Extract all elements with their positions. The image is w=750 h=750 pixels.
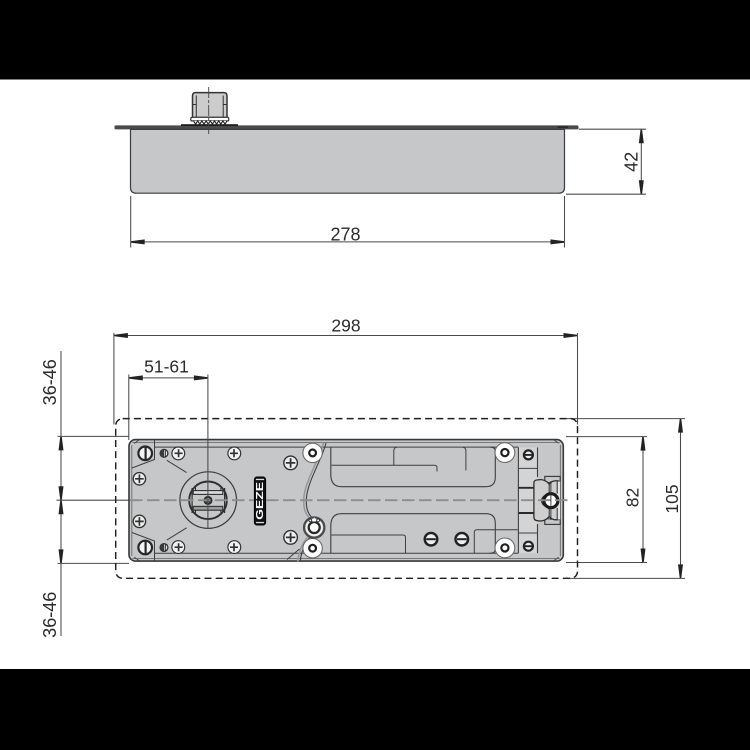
svg-text:42: 42 xyxy=(622,152,642,172)
svg-text:82: 82 xyxy=(622,488,642,507)
svg-text:298: 298 xyxy=(331,315,360,335)
svg-text:51-61: 51-61 xyxy=(144,357,189,377)
svg-text:GEZE: GEZE xyxy=(254,482,266,520)
svg-text:278: 278 xyxy=(330,225,360,245)
svg-text:36-46: 36-46 xyxy=(40,359,60,405)
svg-text:105: 105 xyxy=(662,484,682,513)
svg-text:36-46: 36-46 xyxy=(40,592,60,638)
